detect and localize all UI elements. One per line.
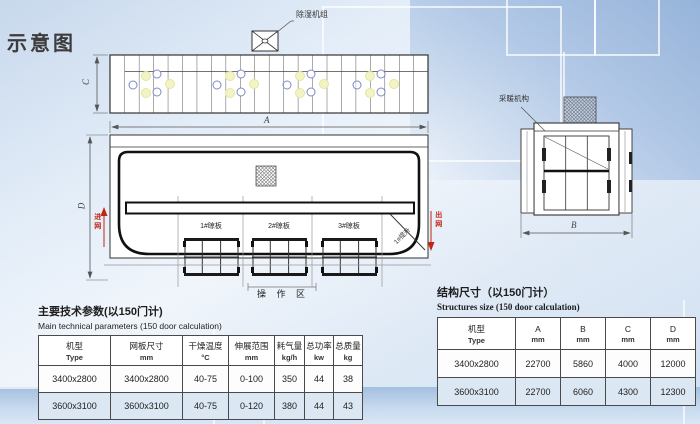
table-header-row: 机型Type Amm Bmm Cmm Dmm (438, 318, 696, 350)
cell: 4300 (606, 378, 651, 406)
dim-d-label: D (77, 203, 87, 210)
cell: 44 (305, 393, 334, 420)
operation-area-label: 操 作 区 (245, 290, 321, 300)
col-header: Dmm (651, 318, 696, 350)
heating-unit-hatch-block (564, 97, 596, 123)
station3-label: 3#晾板 (319, 223, 379, 231)
cell: 6060 (561, 378, 606, 406)
dim-c-label: C (82, 79, 92, 85)
cell: 3600x3100 (111, 393, 183, 420)
cell: 40-75 (183, 366, 229, 393)
heater-hatch-block (256, 166, 276, 186)
col-header: Bmm (561, 318, 606, 350)
col-header: 总质量kg (334, 336, 363, 366)
outlet-label: 出网 (434, 211, 442, 229)
cell: 22700 (516, 350, 561, 378)
conveyor-bar (126, 203, 414, 214)
col-header: 总功率kw (305, 336, 334, 366)
table-row: 3600x3100 22700 6060 4300 12300 (438, 378, 696, 406)
dim-b-label: B (571, 221, 577, 231)
page-title: 示意图 (7, 33, 76, 55)
col-header: 机型Type (438, 318, 516, 350)
cell: 5860 (561, 350, 606, 378)
table-header-row: 机型Type 网板尺寸mm 干燥温度°C 伸展范围mm 耗气量kg/h 总功率k… (39, 336, 363, 366)
col-header: 机型Type (39, 336, 111, 366)
structure-table-subtitle: Structures size (150 door calculation) (437, 303, 580, 313)
cell: 22700 (516, 378, 561, 406)
main-table-title: 主要技术参数(以150门计) (38, 306, 163, 318)
cell: 3400x2800 (39, 366, 111, 393)
cell: 3400x2800 (438, 350, 516, 378)
cell: 380 (275, 393, 305, 420)
cell: 4000 (606, 350, 651, 378)
cell: 350 (275, 366, 305, 393)
cell: 12000 (651, 350, 696, 378)
heater-label: 采暖机构 (499, 95, 529, 103)
table-row: 3600x3100 3600x3100 40-75 0-120 380 44 4… (39, 393, 363, 420)
cell: 43 (334, 393, 363, 420)
side-view (86, 121, 435, 291)
cell: 44 (305, 366, 334, 393)
station2-label: 2#晾板 (249, 223, 309, 231)
table-row: 3400x2800 22700 5860 4000 12000 (438, 350, 696, 378)
cell: 3600x3100 (39, 393, 111, 420)
dehumidifier-fan-icon (252, 31, 278, 51)
col-header: 网板尺寸mm (111, 336, 183, 366)
station1-label: 1#晾板 (181, 223, 241, 231)
dim-a-label: A (264, 116, 270, 126)
main-parameters-table: 机型Type 网板尺寸mm 干燥温度°C 伸展范围mm 耗气量kg/h 总功率k… (38, 335, 363, 420)
cell: 3600x3100 (438, 378, 516, 406)
col-header: 耗气量kg/h (275, 336, 305, 366)
main-table-subtitle: Main technical parameters (150 door calc… (38, 322, 222, 331)
col-header: Amm (516, 318, 561, 350)
cell: 0-120 (229, 393, 275, 420)
col-header: Cmm (606, 318, 651, 350)
table-row: 3400x2800 3400x2800 40-75 0-100 350 44 3… (39, 366, 363, 393)
col-header: 干燥温度°C (183, 336, 229, 366)
end-view (521, 97, 632, 238)
page: 示意图 除湿机组 C A D 进网 出网 1#晾板 2#晾板 3#晾板 1#提升… (0, 0, 700, 424)
cell: 3400x2800 (111, 366, 183, 393)
dehumidifier-label: 除湿机组 (296, 11, 328, 20)
cell: 12300 (651, 378, 696, 406)
structure-table-title: 结构尺寸（以150门计） (437, 287, 554, 299)
structure-size-table: 机型Type Amm Bmm Cmm Dmm 3400x2800 22700 5… (437, 317, 696, 406)
inlet-label: 进网 (93, 213, 101, 231)
cell: 0-100 (229, 366, 275, 393)
cell: 40-75 (183, 393, 229, 420)
cell: 38 (334, 366, 363, 393)
top-view (93, 21, 428, 113)
col-header: 伸展范围mm (229, 336, 275, 366)
